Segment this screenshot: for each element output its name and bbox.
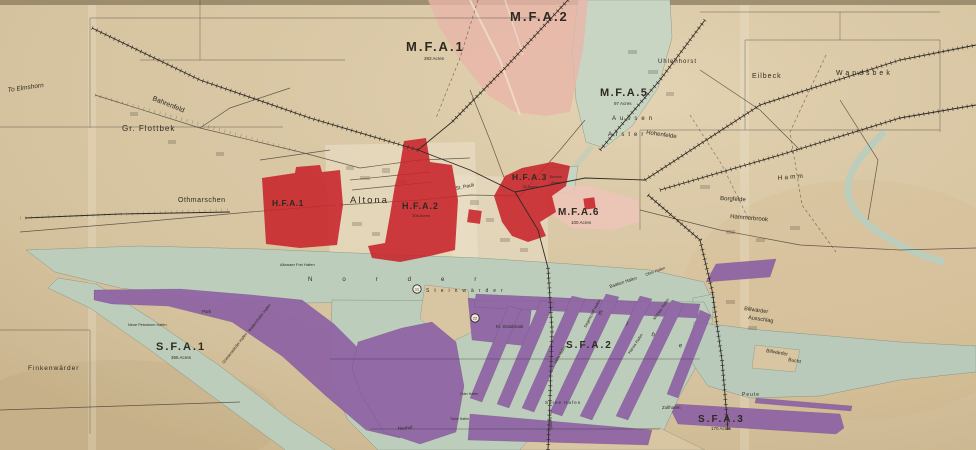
- mfa2-label: M.F.A.2: [510, 9, 569, 24]
- hfa2-acres-label: 308 Acres: [412, 213, 430, 218]
- hfa3-label: H.F.A.3: [512, 172, 547, 182]
- sfa3-label: S.F.A.3: [698, 414, 745, 425]
- oder-hafen-label: Oder Hafen: [460, 392, 478, 396]
- hfa2-label: H.F.A.2: [402, 201, 439, 211]
- sfa1-acres-label: 365 Acres: [171, 355, 192, 360]
- park-label: Park: [202, 309, 212, 314]
- mfa1-acres-label: 393 Acres: [424, 56, 445, 61]
- altona-label: Altona: [350, 195, 389, 206]
- altonaer-frei-hafen-label: Altonaer Frei Hafen: [280, 262, 315, 267]
- sfa3-acres-label: 170 Acres: [711, 426, 732, 431]
- hfa3-acres-label: 78 Acres: [522, 184, 538, 189]
- eilbeck-label: Eilbeck: [752, 73, 782, 80]
- paper-fold-left: [88, 5, 96, 450]
- zollhafen-label: Zollhafen: [662, 405, 681, 410]
- norderelbe-1-label: Norder: [308, 277, 506, 283]
- uhlenhorst-label: Uhlenhorst: [658, 59, 697, 65]
- peute-label: Peute: [742, 392, 760, 398]
- hamburg-zone-map: To ElmshornGr. FlottbekBahrenfeldOthmars…: [0, 0, 976, 450]
- wandsbek-label: Wandsbek: [836, 70, 893, 77]
- finkenwarder-label: Finkenwärder: [28, 365, 79, 372]
- steinwarder-label: Steinwärder: [426, 288, 508, 294]
- neue-petroleum-hafen-label: Neue Petroleum Hafen: [128, 323, 167, 327]
- aussen-label: Aussen: [612, 116, 656, 122]
- sfa2-label: S.F.A.2: [566, 340, 613, 351]
- mfa6-label: M.F.A.6: [558, 207, 599, 218]
- kl-grasbrook-label: Kl. Grasbrook: [496, 324, 524, 329]
- zone-red-fragment-1: [467, 209, 482, 224]
- sfa1-label: S.F.A.1: [156, 341, 206, 353]
- trave-hafen-label: Trave Hafen: [450, 417, 469, 421]
- mfa5-label: M.F.A.5: [600, 87, 648, 99]
- map-marker-11: 11: [413, 285, 421, 293]
- marker-number: 22: [473, 316, 478, 321]
- binnen-alster-1-label: Binnen: [550, 175, 562, 179]
- gr-flottbek-label: Gr. Flottbek: [122, 124, 175, 133]
- alster-label: Alster: [608, 132, 647, 138]
- binnen-alster-2-label: Alster: [551, 181, 561, 185]
- mfa5-acres-label: 97 Acres: [614, 101, 632, 106]
- map-marker-22: 22: [471, 314, 479, 322]
- map-canvas: To ElmshornGr. FlottbekBahrenfeldOthmars…: [0, 0, 976, 450]
- mfa1-label: M.F.A.1: [406, 39, 465, 54]
- othmarschen-label: Othmarschen: [178, 197, 226, 204]
- spree-hafen-label: Spree Hafen: [545, 400, 581, 405]
- mfa6-acres-label: 100 Acres: [571, 220, 592, 225]
- hfa1-label: H.F.A.1: [272, 198, 304, 208]
